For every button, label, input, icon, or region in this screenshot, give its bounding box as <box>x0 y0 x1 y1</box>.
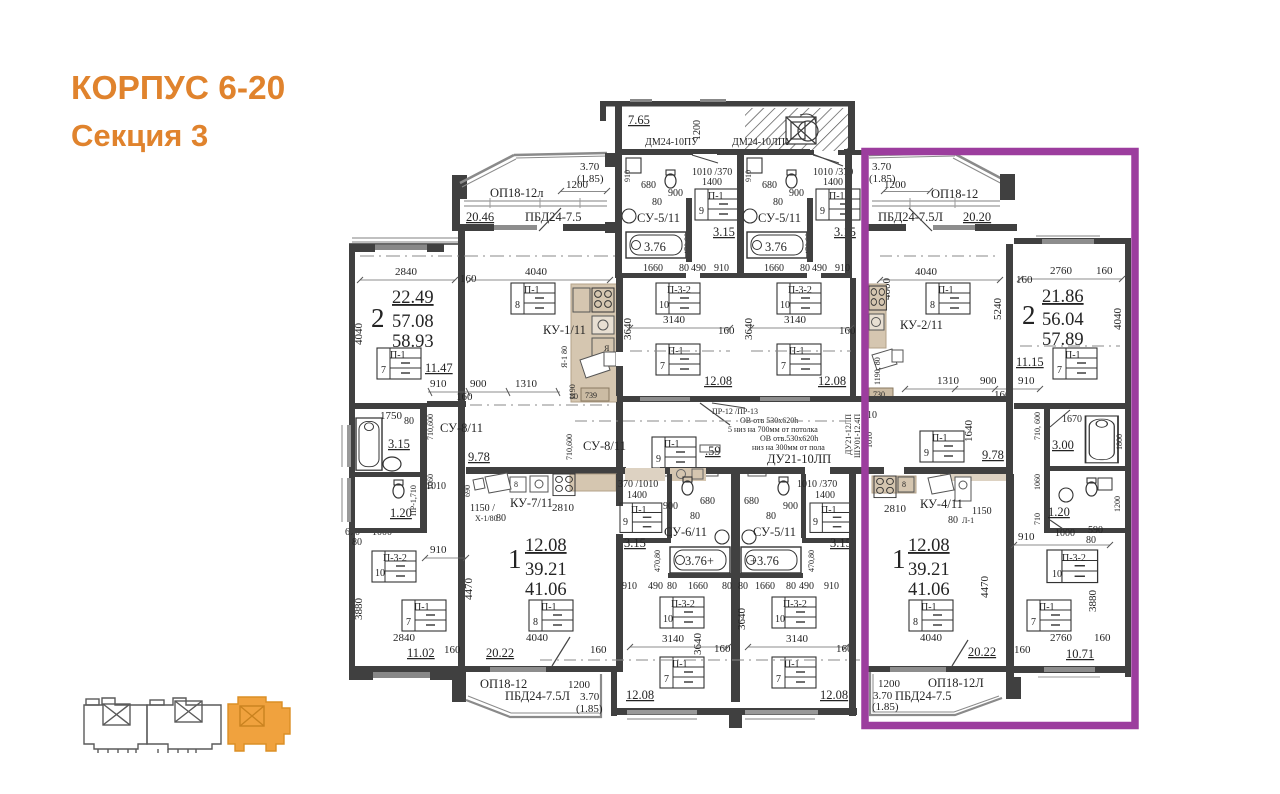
svg-text:9: 9 <box>623 517 628 528</box>
svg-text:710, 600: 710, 600 <box>1033 412 1042 440</box>
svg-text:12.08: 12.08 <box>626 688 654 702</box>
svg-text:80: 80 <box>667 581 677 592</box>
svg-text:КУ-2/11: КУ-2/11 <box>900 318 943 332</box>
svg-text:80: 80 <box>766 511 776 522</box>
svg-text:1200: 1200 <box>568 679 591 691</box>
svg-text:1.20: 1.20 <box>1048 505 1070 519</box>
svg-text:11.47: 11.47 <box>425 361 453 375</box>
svg-text:ДУ21-12ЛП: ДУ21-12ЛП <box>844 414 853 455</box>
svg-text:3.15: 3.15 <box>388 437 410 451</box>
svg-text:П-3-2: П-3-2 <box>671 599 695 610</box>
svg-text:1310: 1310 <box>937 375 960 387</box>
svg-text:ОП18-12Л: ОП18-12Л <box>928 676 984 690</box>
svg-text:910: 910 <box>430 378 447 390</box>
svg-text:680: 680 <box>744 496 759 507</box>
svg-text:П-1: П-1 <box>1039 602 1055 613</box>
svg-text:22.49: 22.49 <box>392 288 434 308</box>
svg-text:3140: 3140 <box>662 633 685 645</box>
svg-text:ОП18-12л: ОП18-12л <box>490 186 543 200</box>
svg-text:80: 80 <box>773 197 783 208</box>
svg-text:4040: 4040 <box>1112 308 1124 331</box>
svg-text:3.15: 3.15 <box>624 536 646 550</box>
svg-text:910: 910 <box>835 263 850 274</box>
svg-text:СУ-8/11: СУ-8/11 <box>440 421 483 435</box>
svg-text:10: 10 <box>375 568 385 579</box>
svg-text:490: 490 <box>812 263 827 274</box>
svg-text:160: 160 <box>718 325 735 337</box>
svg-text:1400: 1400 <box>815 490 835 501</box>
svg-text:39.21: 39.21 <box>908 560 950 580</box>
svg-text:10: 10 <box>780 300 790 311</box>
svg-text:2840: 2840 <box>395 266 418 278</box>
svg-text:П-1: П-1 <box>541 602 557 613</box>
svg-text:160: 160 <box>460 273 477 285</box>
svg-text:4470: 4470 <box>979 576 991 599</box>
svg-text:П-1: П-1 <box>829 191 845 202</box>
svg-text:7.65: 7.65 <box>628 113 650 127</box>
svg-text:Я-1 80: Я-1 80 <box>560 346 569 368</box>
svg-text:910: 910 <box>714 263 729 274</box>
svg-text:ОП18-12: ОП18-12 <box>931 187 978 201</box>
svg-text:7: 7 <box>664 674 669 685</box>
svg-text:9: 9 <box>924 448 929 459</box>
svg-text:680: 680 <box>641 180 656 191</box>
svg-text:8: 8 <box>514 480 518 489</box>
svg-text:1800: 1800 <box>1115 434 1124 450</box>
svg-text:7: 7 <box>781 361 786 372</box>
svg-text:(1.85): (1.85) <box>576 703 603 715</box>
svg-text:9: 9 <box>699 206 704 217</box>
svg-text:КОРПУС 6-20: КОРПУС 6-20 <box>71 70 285 107</box>
svg-text:1640: 1640 <box>963 420 975 443</box>
svg-text:710,600: 710,600 <box>565 434 574 460</box>
svg-text:(1.85): (1.85) <box>872 701 899 713</box>
svg-text:П-3-2: П-3-2 <box>783 599 807 610</box>
svg-text:8: 8 <box>533 617 538 628</box>
svg-text:5240: 5240 <box>992 298 1004 321</box>
svg-text:П-1: П-1 <box>1065 350 1081 361</box>
svg-text:П-1: П-1 <box>668 346 684 357</box>
svg-text:2: 2 <box>1022 300 1036 330</box>
svg-text:160: 160 <box>714 643 731 655</box>
svg-text:ДУ21-10ЛП: ДУ21-10ЛП <box>767 452 831 466</box>
svg-text:3.76: 3.76 <box>644 240 666 254</box>
svg-text:10: 10 <box>663 614 673 625</box>
svg-text:ДМ24-10ЛПУ: ДМ24-10ЛПУ <box>732 137 793 148</box>
svg-text:П-1: П-1 <box>938 285 954 296</box>
svg-text:8: 8 <box>902 480 906 489</box>
svg-text:1400: 1400 <box>627 490 647 501</box>
svg-text:80: 80 <box>1086 535 1096 546</box>
svg-text:3.15: 3.15 <box>830 536 852 550</box>
svg-text:П-1: П-1 <box>524 285 540 296</box>
svg-text:2: 2 <box>371 303 385 333</box>
svg-text:.59: .59 <box>705 444 721 458</box>
svg-text:П-3-2: П-3-2 <box>788 285 812 296</box>
svg-text:160: 160 <box>1014 644 1031 656</box>
svg-text:ПБД24-7.5: ПБД24-7.5 <box>895 689 952 703</box>
svg-text:+3.76: +3.76 <box>750 554 779 568</box>
svg-text:9: 9 <box>813 517 818 528</box>
svg-text:710: 710 <box>1033 513 1042 525</box>
svg-text:4040: 4040 <box>526 632 549 644</box>
svg-text:900: 900 <box>668 188 683 199</box>
svg-text:ШУ01-12.4П: ШУ01-12.4П <box>853 414 862 458</box>
svg-text:5 низ на 700мм от потолка: 5 низ на 700мм от потолка <box>728 425 818 434</box>
svg-text:10: 10 <box>775 614 785 625</box>
svg-text:8: 8 <box>930 300 935 311</box>
svg-text:160: 160 <box>1094 632 1111 644</box>
svg-text:3880: 3880 <box>1087 590 1099 613</box>
svg-text:низ на 300мм от пола: низ на 300мм от пола <box>752 443 825 452</box>
svg-text:3880: 3880 <box>353 598 365 621</box>
svg-text:1670: 1670 <box>1062 414 1082 425</box>
svg-text:1660: 1660 <box>764 263 784 274</box>
svg-text:900: 900 <box>980 375 997 387</box>
svg-text:ПБД24-7.5Л: ПБД24-7.5Л <box>878 210 944 224</box>
svg-text:4040: 4040 <box>915 266 938 278</box>
svg-text:2840: 2840 <box>393 632 416 644</box>
svg-text:9.78: 9.78 <box>982 448 1004 462</box>
svg-text:П-1: П-1 <box>932 433 948 444</box>
svg-text:1150: 1150 <box>972 506 992 517</box>
svg-text:160: 160 <box>839 325 856 337</box>
svg-text:СУ-5/11: СУ-5/11 <box>758 211 801 225</box>
svg-text:739: 739 <box>585 391 597 400</box>
svg-text:490: 490 <box>799 581 814 592</box>
svg-text:80: 80 <box>652 197 662 208</box>
svg-text:Х-1/80: Х-1/80 <box>475 514 498 523</box>
svg-text:3140: 3140 <box>784 314 807 326</box>
svg-text:1190, 80: 1190, 80 <box>873 357 882 385</box>
svg-text:П-1: П-1 <box>708 191 724 202</box>
svg-text:12.08: 12.08 <box>525 536 567 556</box>
svg-text:КУ-1/11: КУ-1/11 <box>543 323 586 337</box>
svg-text:80: 80 <box>948 515 958 526</box>
svg-text:7: 7 <box>381 365 386 376</box>
svg-text:4040: 4040 <box>353 323 365 346</box>
svg-text:ПБД24-7.5Л: ПБД24-7.5Л <box>505 689 571 703</box>
svg-text:1200: 1200 <box>884 179 907 191</box>
svg-text:8: 8 <box>913 617 918 628</box>
svg-text:57.89: 57.89 <box>1042 330 1084 350</box>
svg-text:ПБД24-7.5: ПБД24-7.5 <box>525 210 582 224</box>
svg-text:9: 9 <box>820 206 825 217</box>
svg-text:2810: 2810 <box>552 502 575 514</box>
svg-text:П-1: П-1 <box>789 346 805 357</box>
svg-text:80: 80 <box>738 581 748 592</box>
svg-text:160: 160 <box>1096 265 1113 277</box>
svg-text:1060: 1060 <box>1033 474 1042 490</box>
svg-text:9.78: 9.78 <box>468 450 490 464</box>
svg-text:20.20: 20.20 <box>963 210 991 224</box>
svg-text:690: 690 <box>463 485 472 497</box>
svg-text:680: 680 <box>700 496 715 507</box>
svg-text:П-1: П-1 <box>664 439 680 450</box>
svg-text:7: 7 <box>406 617 411 628</box>
svg-text:1660: 1660 <box>643 263 663 274</box>
svg-text:3640: 3640 <box>622 318 634 341</box>
svg-text:160: 160 <box>590 644 607 656</box>
svg-text:57.08: 57.08 <box>392 312 434 332</box>
svg-text:910: 910 <box>1018 375 1035 387</box>
svg-text:710,600: 710,600 <box>426 414 435 440</box>
svg-text:20.22: 20.22 <box>968 645 996 659</box>
svg-text:11.02: 11.02 <box>407 646 435 660</box>
svg-text:1660: 1660 <box>688 581 708 592</box>
svg-text:ПР-12 /ПР-13: ПР-12 /ПР-13 <box>712 407 758 416</box>
svg-text:80: 80 <box>404 416 414 427</box>
svg-text:3140: 3140 <box>786 633 809 645</box>
svg-text:80: 80 <box>679 263 689 274</box>
svg-text:3.76+: 3.76+ <box>685 554 714 568</box>
svg-text:1660: 1660 <box>755 581 775 592</box>
svg-text:1: 1 <box>892 544 906 574</box>
svg-text:П-1: П-1 <box>631 505 647 516</box>
svg-text:1010: 1010 <box>426 481 446 492</box>
svg-text:39.21: 39.21 <box>525 560 567 580</box>
svg-text:470,80: 470,80 <box>653 550 662 572</box>
svg-text:12.08: 12.08 <box>908 536 950 556</box>
svg-text:2810: 2810 <box>884 503 907 515</box>
svg-text:80: 80 <box>786 581 796 592</box>
svg-text:ПР-1,710: ПР-1,710 <box>409 485 418 516</box>
svg-text:1400: 1400 <box>702 177 722 188</box>
svg-text:910: 910 <box>622 581 637 592</box>
svg-text:Л-1: Л-1 <box>962 516 974 525</box>
svg-text:8: 8 <box>515 300 520 311</box>
svg-text:3.70: 3.70 <box>872 161 892 173</box>
svg-text:21.86: 21.86 <box>1042 287 1084 307</box>
svg-text:Секция 3: Секция 3 <box>71 118 208 153</box>
svg-text:12.08: 12.08 <box>818 374 846 388</box>
svg-text:ОВ отв.530х620h: ОВ отв.530х620h <box>760 434 818 443</box>
svg-text:900: 900 <box>789 188 804 199</box>
svg-text:7: 7 <box>660 361 665 372</box>
svg-text:3.00: 3.00 <box>1052 438 1074 452</box>
svg-text:СУ-5/11: СУ-5/11 <box>753 525 796 539</box>
svg-text:41.06: 41.06 <box>908 580 950 600</box>
svg-text:80: 80 <box>496 513 506 524</box>
svg-text:3640: 3640 <box>692 633 704 656</box>
svg-text:П-3-2: П-3-2 <box>1062 553 1086 564</box>
svg-text:370 /1010: 370 /1010 <box>618 479 658 490</box>
svg-text:7: 7 <box>1057 365 1062 376</box>
svg-text:КУ-7/11: КУ-7/11 <box>510 496 553 510</box>
svg-text:9: 9 <box>656 454 661 465</box>
svg-text:900: 900 <box>663 501 678 512</box>
svg-text:СУ-6/11: СУ-6/11 <box>664 525 707 539</box>
svg-text:1000: 1000 <box>1055 528 1075 539</box>
svg-text:80: 80 <box>690 511 700 522</box>
svg-text:7: 7 <box>776 674 781 685</box>
svg-text:680: 680 <box>762 180 777 191</box>
svg-text:10: 10 <box>659 300 669 311</box>
svg-text:3.76: 3.76 <box>765 240 787 254</box>
svg-text:910: 910 <box>824 581 839 592</box>
svg-text:П-3-2: П-3-2 <box>667 285 691 296</box>
svg-text:80: 80 <box>800 263 810 274</box>
svg-text:П-1: П-1 <box>921 602 937 613</box>
svg-text:1200: 1200 <box>692 120 703 140</box>
svg-text:П-1: П-1 <box>390 350 406 361</box>
svg-text:1150 /: 1150 / <box>470 503 495 514</box>
svg-text:1200: 1200 <box>1113 496 1122 512</box>
svg-text:470,80: 470,80 <box>807 550 816 572</box>
svg-text:ОВ отв 530х620h: ОВ отв 530х620h <box>740 416 798 425</box>
svg-text:160: 160 <box>444 644 461 656</box>
svg-text:П-3-2: П-3-2 <box>383 553 407 564</box>
svg-text:СУ-8/11: СУ-8/11 <box>583 439 626 453</box>
svg-text:1750: 1750 <box>380 410 403 422</box>
svg-text:12.08: 12.08 <box>704 374 732 388</box>
svg-text:1010 /370: 1010 /370 <box>797 479 837 490</box>
svg-text:41.06: 41.06 <box>525 580 567 600</box>
svg-text:3.15: 3.15 <box>713 225 735 239</box>
svg-text:58.93: 58.93 <box>392 332 434 352</box>
svg-text:СУ-5/11: СУ-5/11 <box>637 211 680 225</box>
svg-text:80: 80 <box>722 581 732 592</box>
svg-text:3640: 3640 <box>743 318 755 341</box>
svg-text:П-1: П-1 <box>672 659 688 670</box>
svg-text:10.71: 10.71 <box>1066 647 1094 661</box>
svg-text:11.15: 11.15 <box>1016 355 1044 369</box>
svg-text:56.04: 56.04 <box>1042 310 1084 330</box>
svg-text:3640: 3640 <box>736 608 748 631</box>
svg-text:1310: 1310 <box>515 378 538 390</box>
svg-text:490: 490 <box>648 581 663 592</box>
svg-text:2760: 2760 <box>1050 265 1073 277</box>
svg-text:490: 490 <box>691 263 706 274</box>
svg-text:1400: 1400 <box>823 177 843 188</box>
svg-text:1: 1 <box>508 544 522 574</box>
svg-text:7: 7 <box>1031 617 1036 628</box>
svg-text:4040: 4040 <box>525 266 548 278</box>
svg-text:1200: 1200 <box>566 179 589 191</box>
svg-text:80: 80 <box>352 537 362 548</box>
svg-text:12.08: 12.08 <box>820 688 848 702</box>
svg-text:910: 910 <box>744 170 753 182</box>
svg-text:П-1: П-1 <box>821 505 837 516</box>
svg-text:П-1: П-1 <box>414 602 430 613</box>
svg-text:900: 900 <box>783 501 798 512</box>
svg-text:3.15: 3.15 <box>834 225 856 239</box>
svg-text:3140: 3140 <box>663 314 686 326</box>
svg-text:910: 910 <box>1018 531 1035 543</box>
svg-text:910: 910 <box>623 170 632 182</box>
svg-text:КУ-4/11: КУ-4/11 <box>920 497 963 511</box>
svg-text:П-1: П-1 <box>784 659 800 670</box>
svg-text:2760: 2760 <box>1050 632 1073 644</box>
svg-text:3.70: 3.70 <box>580 161 600 173</box>
svg-text:4040: 4040 <box>920 632 943 644</box>
svg-text:80: 80 <box>570 392 578 401</box>
svg-text:10: 10 <box>1052 569 1062 580</box>
svg-text:910: 910 <box>430 544 447 556</box>
svg-text:20.46: 20.46 <box>466 210 494 224</box>
svg-text:3.70: 3.70 <box>580 691 600 703</box>
svg-text:900: 900 <box>470 378 487 390</box>
svg-text:4470: 4470 <box>463 578 475 601</box>
svg-text:20.22: 20.22 <box>486 646 514 660</box>
